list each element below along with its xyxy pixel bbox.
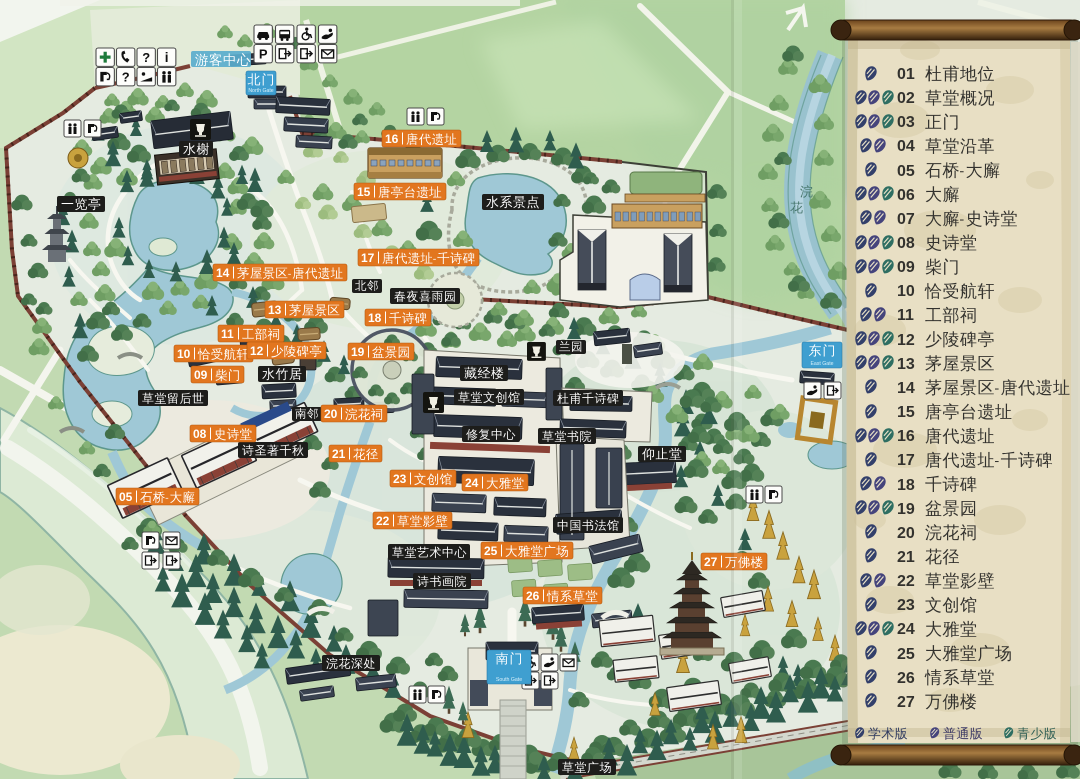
svg-text:23: 23 xyxy=(393,472,407,486)
svg-text:02: 02 xyxy=(897,90,915,107)
svg-text:09: 09 xyxy=(194,368,208,382)
svg-text:19: 19 xyxy=(897,501,915,518)
svg-text:South Gate: South Gate xyxy=(496,677,522,683)
svg-text:08: 08 xyxy=(897,235,915,252)
svg-text:10: 10 xyxy=(897,283,915,300)
svg-text:26: 26 xyxy=(526,589,540,603)
svg-text:27: 27 xyxy=(704,555,718,569)
svg-text:07: 07 xyxy=(897,211,915,228)
svg-text:25: 25 xyxy=(484,544,498,558)
svg-text:22: 22 xyxy=(376,514,390,528)
svg-text:15: 15 xyxy=(897,404,915,421)
svg-text:24: 24 xyxy=(897,621,915,638)
svg-text:12: 12 xyxy=(250,344,264,358)
svg-text:27: 27 xyxy=(897,694,915,711)
svg-text:13: 13 xyxy=(268,303,282,317)
svg-text:20: 20 xyxy=(324,407,338,421)
svg-text:13: 13 xyxy=(897,356,915,373)
svg-text:16: 16 xyxy=(385,132,399,146)
svg-text:25: 25 xyxy=(897,646,915,663)
svg-text:14: 14 xyxy=(216,266,230,280)
svg-text:14: 14 xyxy=(897,380,915,397)
svg-text:East Gate: East Gate xyxy=(810,361,833,367)
svg-text:17: 17 xyxy=(897,452,915,469)
svg-text:21: 21 xyxy=(897,549,915,566)
svg-text:04: 04 xyxy=(897,138,915,155)
svg-text:03: 03 xyxy=(897,114,915,131)
svg-text:16: 16 xyxy=(897,428,915,445)
svg-text:09: 09 xyxy=(897,259,915,276)
svg-text:20: 20 xyxy=(897,525,915,542)
svg-text:11: 11 xyxy=(897,307,914,324)
svg-text:23: 23 xyxy=(897,597,915,614)
svg-text:08: 08 xyxy=(193,427,207,441)
svg-text:12: 12 xyxy=(897,332,915,349)
svg-text:05: 05 xyxy=(119,490,133,504)
svg-text:05: 05 xyxy=(897,163,915,180)
svg-text:18: 18 xyxy=(368,311,382,325)
svg-text:17: 17 xyxy=(361,251,375,265)
svg-text:11: 11 xyxy=(221,327,234,341)
svg-text:06: 06 xyxy=(897,187,915,204)
svg-text:21: 21 xyxy=(332,447,346,461)
svg-text:19: 19 xyxy=(351,345,365,359)
svg-text:01: 01 xyxy=(897,66,915,83)
svg-text:24: 24 xyxy=(465,476,479,490)
svg-text:10: 10 xyxy=(177,347,191,361)
svg-text:22: 22 xyxy=(897,573,915,590)
svg-text:26: 26 xyxy=(897,670,915,687)
svg-text:15: 15 xyxy=(357,185,371,199)
svg-text:18: 18 xyxy=(897,477,915,494)
svg-text:North Gate: North Gate xyxy=(248,88,273,94)
